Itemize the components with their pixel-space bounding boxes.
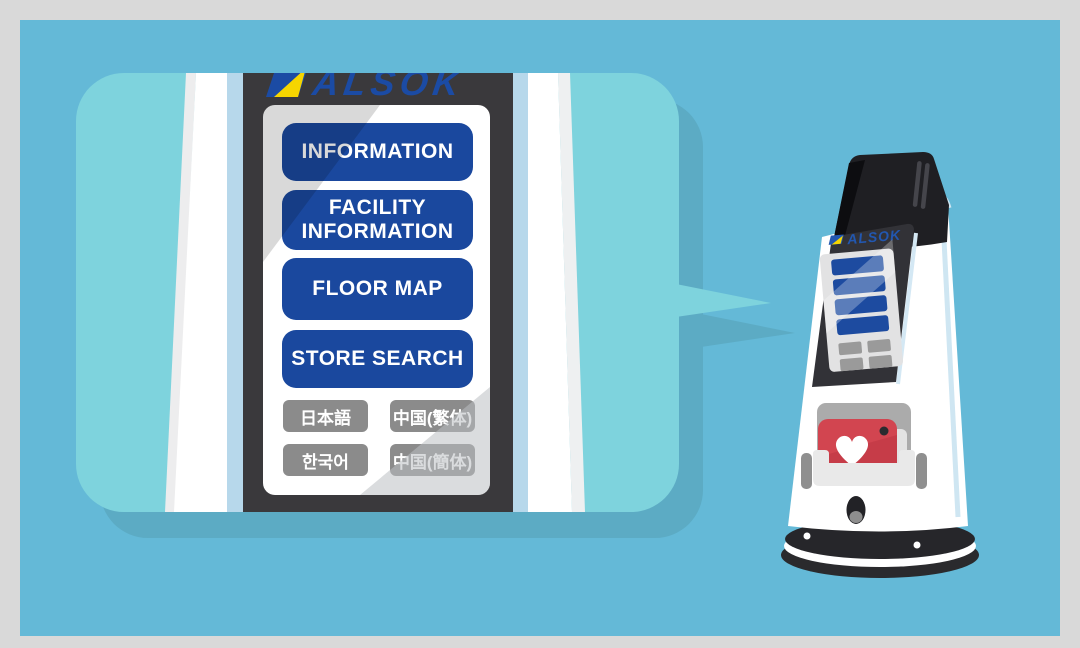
tail-pointer [676,284,771,317]
language-button-chinese-traditional[interactable]: 中国(繁体) [390,400,475,432]
left-blue-trim [227,73,243,512]
floor-map-button[interactable]: FLOOR MAP [282,258,473,320]
kiosk-tablet: ALSOK INFORMATION FACILITY INFORMATION F… [243,73,513,512]
aed-indicator-dot [880,427,889,436]
language-button-chinese-simplified[interactable]: 中国(簡体) [390,444,475,476]
alsok-logo: ALSOK [266,73,464,106]
side-bracket-left [801,453,812,489]
sensor-oval [847,496,866,524]
language-button-korean[interactable]: 한국어 [283,444,368,476]
side-bracket-right [916,453,927,489]
information-button[interactable]: INFORMATION [282,123,473,181]
alsok-wordmark: ALSOK [311,73,467,100]
robot-illustration: ALSOK [780,145,980,585]
language-button-japanese[interactable]: 日本語 [283,400,368,432]
facility-information-button[interactable]: FACILITY INFORMATION [282,190,473,250]
illustration-canvas: ALSOK INFORMATION FACILITY INFORMATION F… [20,20,1060,636]
outer-frame: ALSOK INFORMATION FACILITY INFORMATION F… [0,0,1080,648]
kiosk-screen: INFORMATION FACILITY INFORMATION FLOOR M… [263,105,490,495]
aed-compartment [801,403,927,489]
alsok-flag-icon [266,73,308,97]
bumper-dot-right [914,542,921,549]
bumper-dot-left [804,533,811,540]
right-blue-trim [513,73,528,512]
speech-bubble: ALSOK INFORMATION FACILITY INFORMATION F… [76,73,679,512]
store-search-button[interactable]: STORE SEARCH [282,330,473,388]
